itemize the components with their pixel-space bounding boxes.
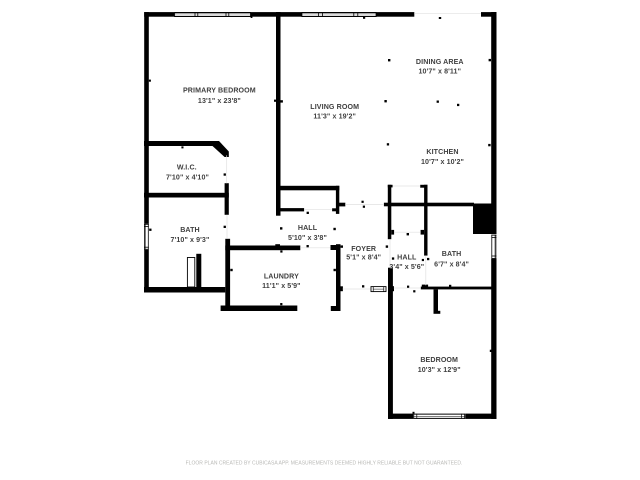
- svg-text:5'1" x 8'4": 5'1" x 8'4": [346, 254, 381, 262]
- svg-text:FOYER: FOYER: [351, 245, 376, 253]
- svg-text:5'10" x 3'8": 5'10" x 3'8": [288, 234, 327, 242]
- svg-text:7'10" x 9'3": 7'10" x 9'3": [171, 236, 210, 244]
- svg-text:11'1" x 5'9": 11'1" x 5'9": [262, 282, 301, 290]
- svg-text:LAUNDRY: LAUNDRY: [264, 272, 299, 280]
- svg-text:BEDROOM: BEDROOM: [420, 356, 458, 364]
- svg-text:BATH: BATH: [180, 226, 200, 234]
- svg-text:W.I.C.: W.I.C.: [177, 164, 197, 172]
- svg-text:HALL: HALL: [397, 254, 417, 262]
- svg-text:7'10" x 4'10": 7'10" x 4'10": [166, 173, 209, 181]
- svg-text:6'7" x 8'4": 6'7" x 8'4": [434, 260, 469, 268]
- svg-text:FLOOR PLAN CREATED BY CUBICASA: FLOOR PLAN CREATED BY CUBICASA APP. MEAS…: [186, 461, 463, 467]
- svg-text:11'3" x 19'2": 11'3" x 19'2": [313, 113, 356, 121]
- svg-text:BATH: BATH: [442, 250, 462, 258]
- svg-text:LIVING ROOM: LIVING ROOM: [310, 103, 359, 111]
- svg-text:DINING AREA: DINING AREA: [416, 58, 464, 66]
- svg-text:3'4" x 5'6": 3'4" x 5'6": [389, 263, 424, 271]
- svg-text:KITCHEN: KITCHEN: [426, 148, 458, 156]
- svg-text:10'7" x 8'11": 10'7" x 8'11": [419, 68, 462, 76]
- svg-text:PRIMARY BEDROOM: PRIMARY BEDROOM: [183, 87, 256, 95]
- svg-text:10'3" x 12'9": 10'3" x 12'9": [418, 366, 461, 374]
- svg-text:13'1" x 23'8": 13'1" x 23'8": [198, 97, 241, 105]
- svg-text:HALL: HALL: [298, 224, 318, 232]
- svg-text:10'7" x 10'2": 10'7" x 10'2": [421, 158, 464, 166]
